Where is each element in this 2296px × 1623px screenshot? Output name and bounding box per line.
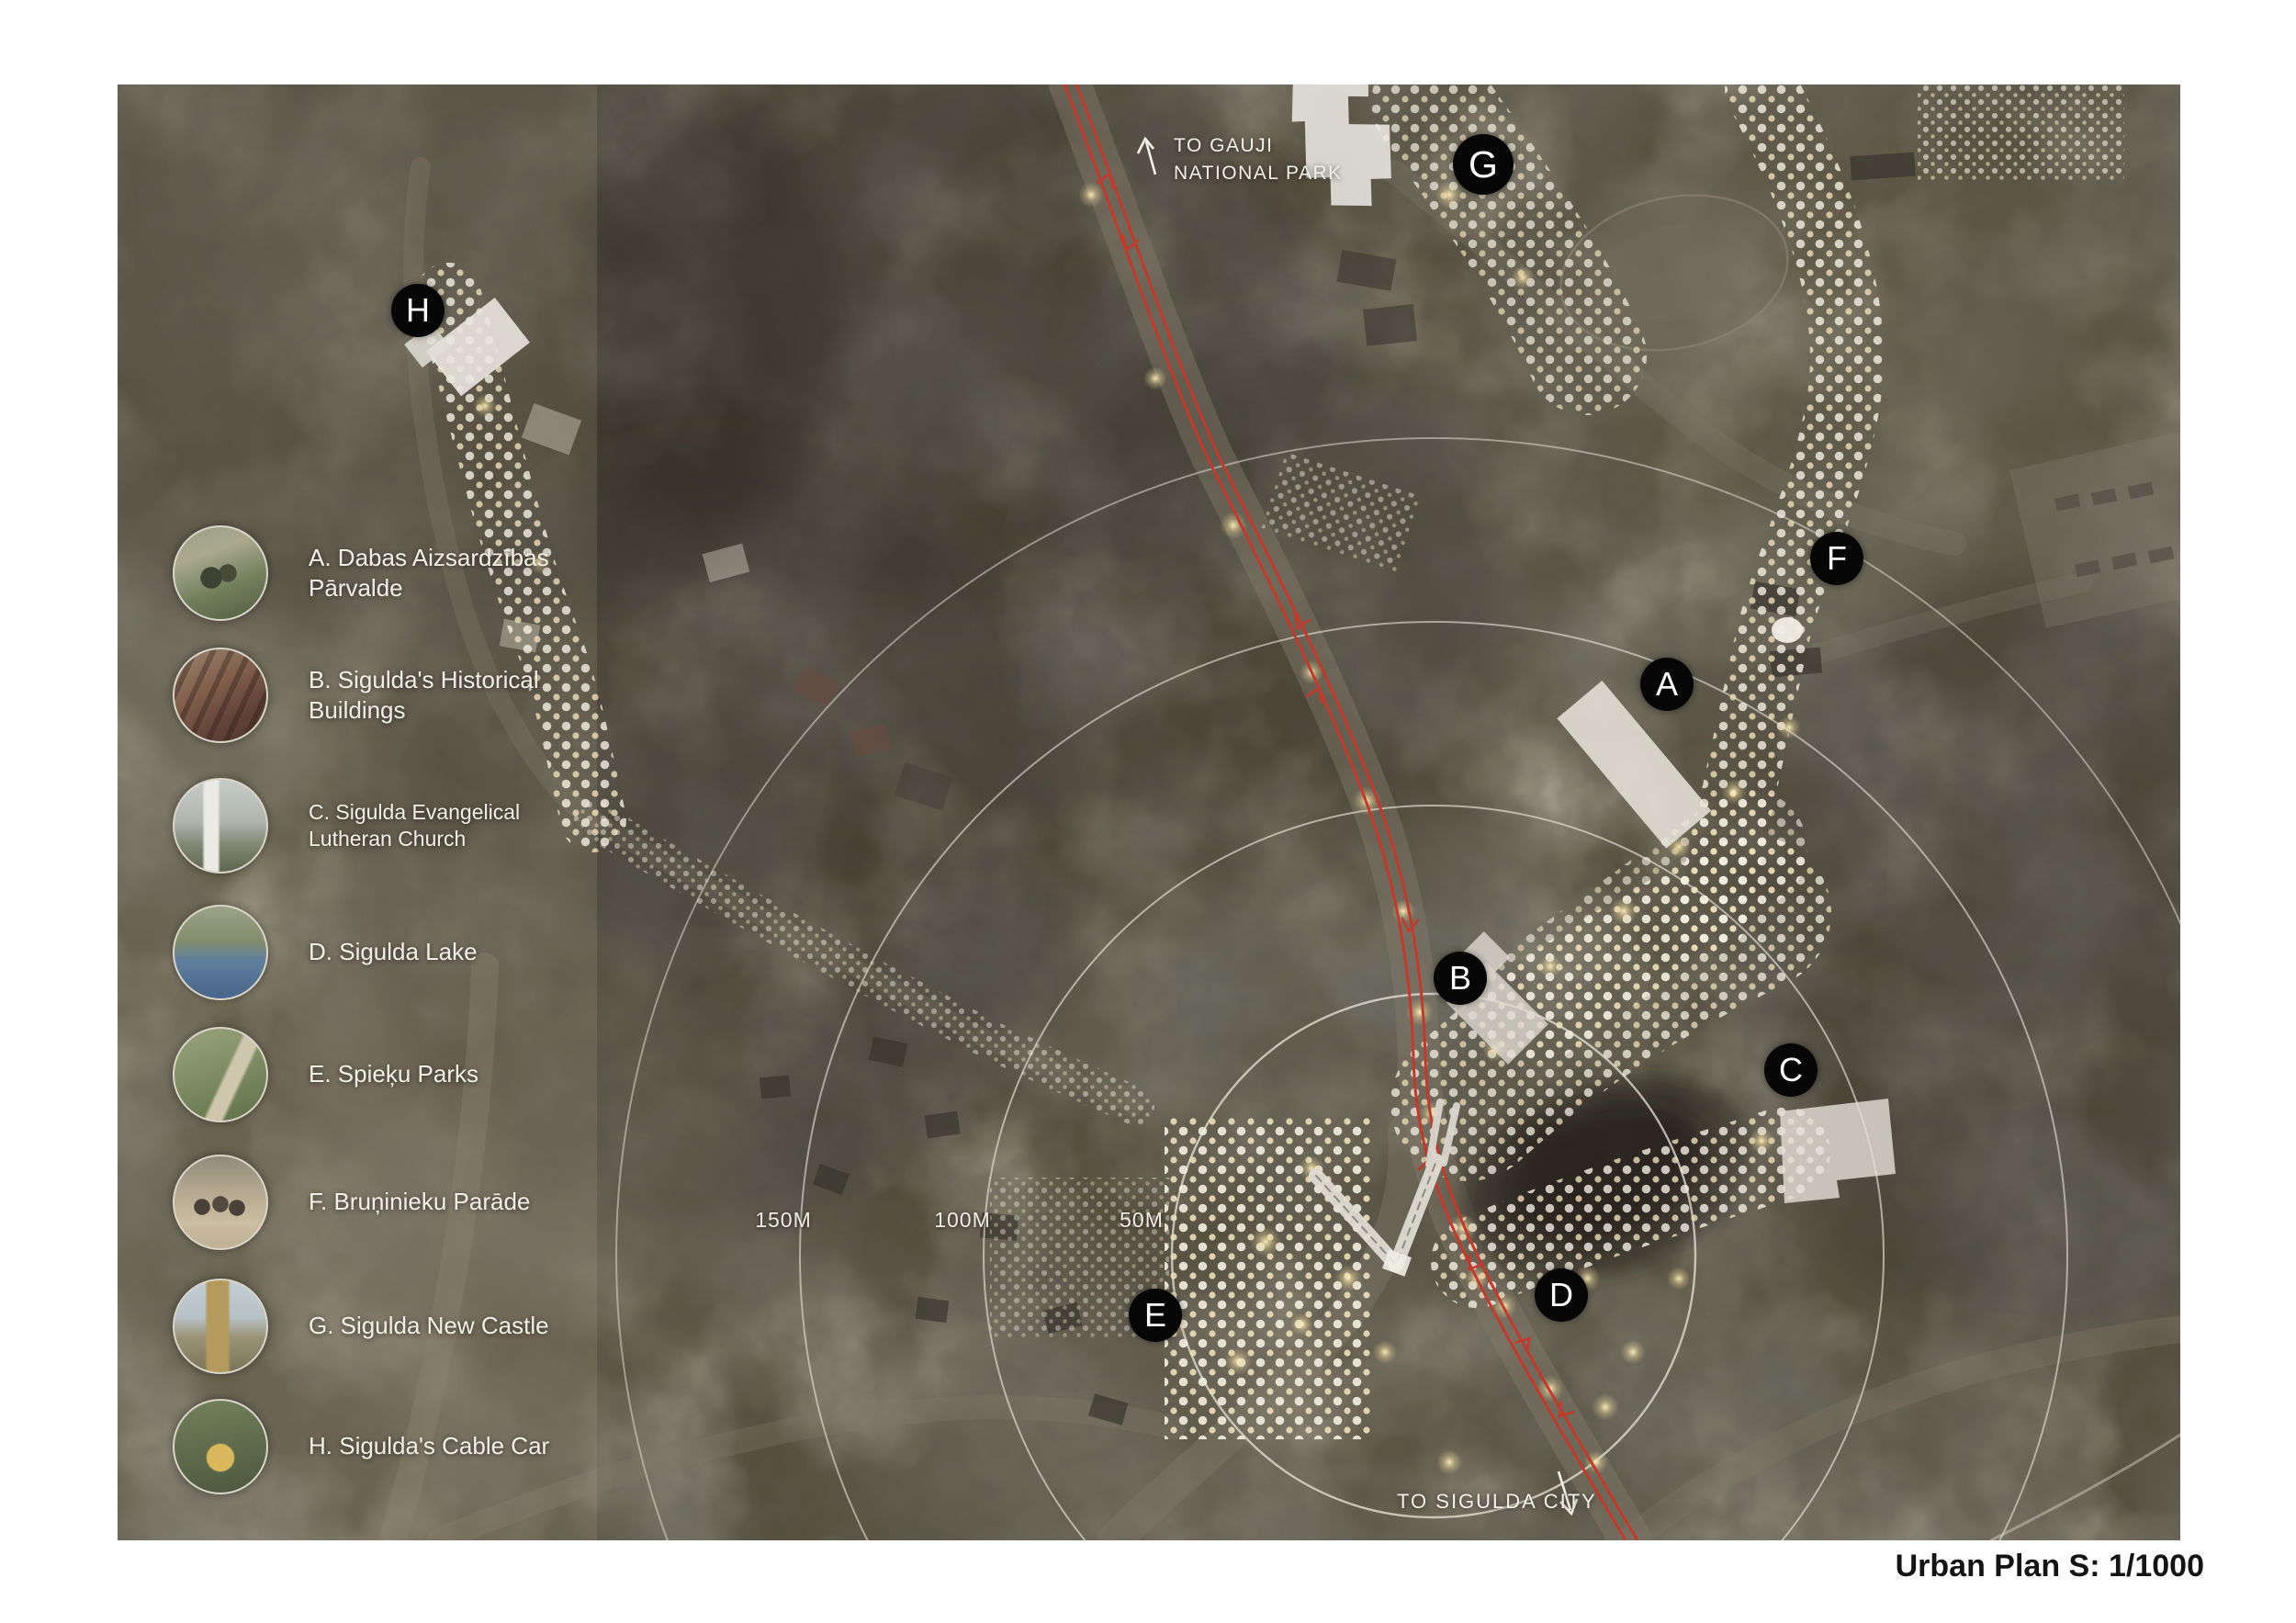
legend-label-f: F. Bruņinieku Parāde bbox=[309, 1187, 570, 1217]
map-marker-g: G bbox=[1453, 134, 1514, 195]
legend-photo-g bbox=[173, 1279, 268, 1374]
legend-label-a: A. Dabas Aizsardzības Pārvalde bbox=[309, 543, 570, 604]
legend-item-e: E. Spieķu Parks bbox=[173, 1027, 570, 1122]
legend-item-a: A. Dabas Aizsardzības Pārvalde bbox=[173, 525, 570, 621]
legend-item-c: C. Sigulda Evangelical Lutheran Church bbox=[173, 778, 570, 873]
legend-label-d: D. Sigulda Lake bbox=[309, 937, 570, 967]
legend-label-e: E. Spieķu Parks bbox=[309, 1059, 570, 1089]
legend-photo-e bbox=[173, 1027, 268, 1122]
legend-label-c: C. Sigulda Evangelical Lutheran Church bbox=[309, 799, 570, 853]
legend-item-g: G. Sigulda New Castle bbox=[173, 1279, 570, 1374]
map-marker-c: C bbox=[1764, 1043, 1818, 1097]
map-caption: Urban Plan S: 1/1000 bbox=[1896, 1549, 2204, 1584]
legend-photo-h bbox=[173, 1399, 268, 1494]
legend-item-f: F. Bruņinieku Parāde bbox=[173, 1155, 570, 1250]
scale-label-150m: 150M bbox=[742, 1208, 825, 1233]
legend-item-b: B. Sigulda's Historical Buildings bbox=[173, 648, 570, 743]
legend-item-d: D. Sigulda Lake bbox=[173, 905, 570, 1000]
annotation-to-sigulda-city: TO SIGULDA CITY bbox=[1397, 1490, 1597, 1514]
legend-label-h: H. Sigulda's Cable Car bbox=[309, 1431, 570, 1461]
annotation-to-gauji-national-park: TO GAUJI NATIONAL PARK bbox=[1174, 132, 1343, 188]
legend-label-g: G. Sigulda New Castle bbox=[309, 1311, 570, 1341]
annotation-to-park-line1: TO GAUJI bbox=[1174, 132, 1343, 160]
scale-label-50m: 50M bbox=[1100, 1208, 1183, 1233]
urban-plan-poster: A. Dabas Aizsardzības Pārvalde B. Siguld… bbox=[0, 0, 2296, 1623]
legend-photo-c bbox=[173, 778, 268, 873]
scale-label-100m: 100M bbox=[921, 1208, 1004, 1233]
map-marker-f: F bbox=[1810, 532, 1863, 585]
map-marker-b: B bbox=[1434, 952, 1487, 1005]
map-marker-d: D bbox=[1535, 1268, 1588, 1322]
legend-photo-d bbox=[173, 905, 268, 1000]
legend-item-h: H. Sigulda's Cable Car bbox=[173, 1399, 570, 1494]
legend-photo-f bbox=[173, 1155, 268, 1250]
pavilion-dome bbox=[1772, 617, 1803, 643]
map-marker-a: A bbox=[1640, 658, 1694, 711]
map-marker-e: E bbox=[1129, 1289, 1182, 1342]
annotation-to-park-line2: NATIONAL PARK bbox=[1174, 160, 1343, 187]
legend-label-b: B. Sigulda's Historical Buildings bbox=[309, 665, 570, 727]
map-marker-h: H bbox=[391, 284, 445, 337]
legend-photo-a bbox=[173, 525, 268, 621]
legend-photo-b bbox=[173, 648, 268, 743]
aerial-map: A. Dabas Aizsardzības Pārvalde B. Siguld… bbox=[118, 85, 2180, 1540]
